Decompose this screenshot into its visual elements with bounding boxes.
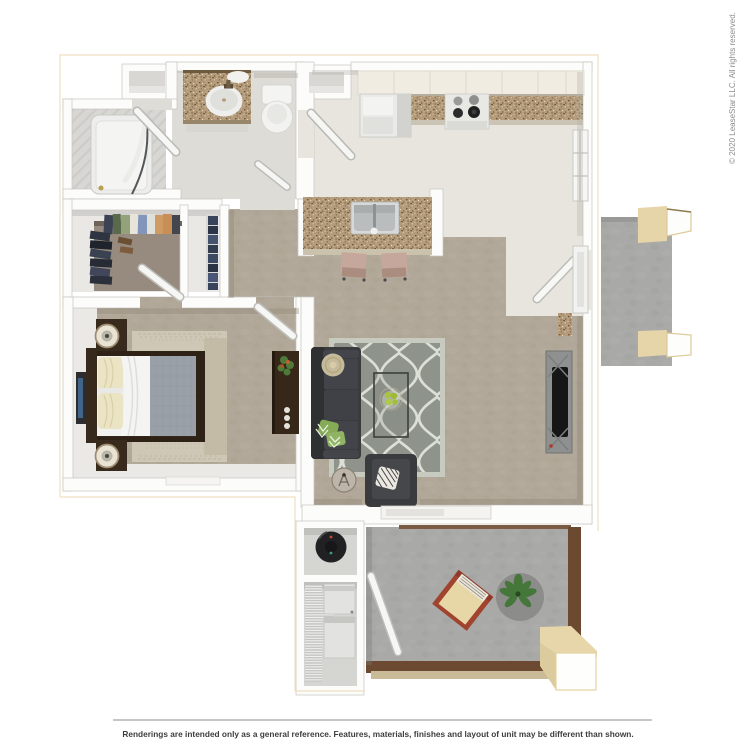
svg-text:Renderings are intended only a: Renderings are intended only as a genera… (122, 729, 633, 739)
svg-text:© 2020 LeaseStar LLC. All righ: © 2020 LeaseStar LLC. All rights reserve… (728, 12, 737, 164)
